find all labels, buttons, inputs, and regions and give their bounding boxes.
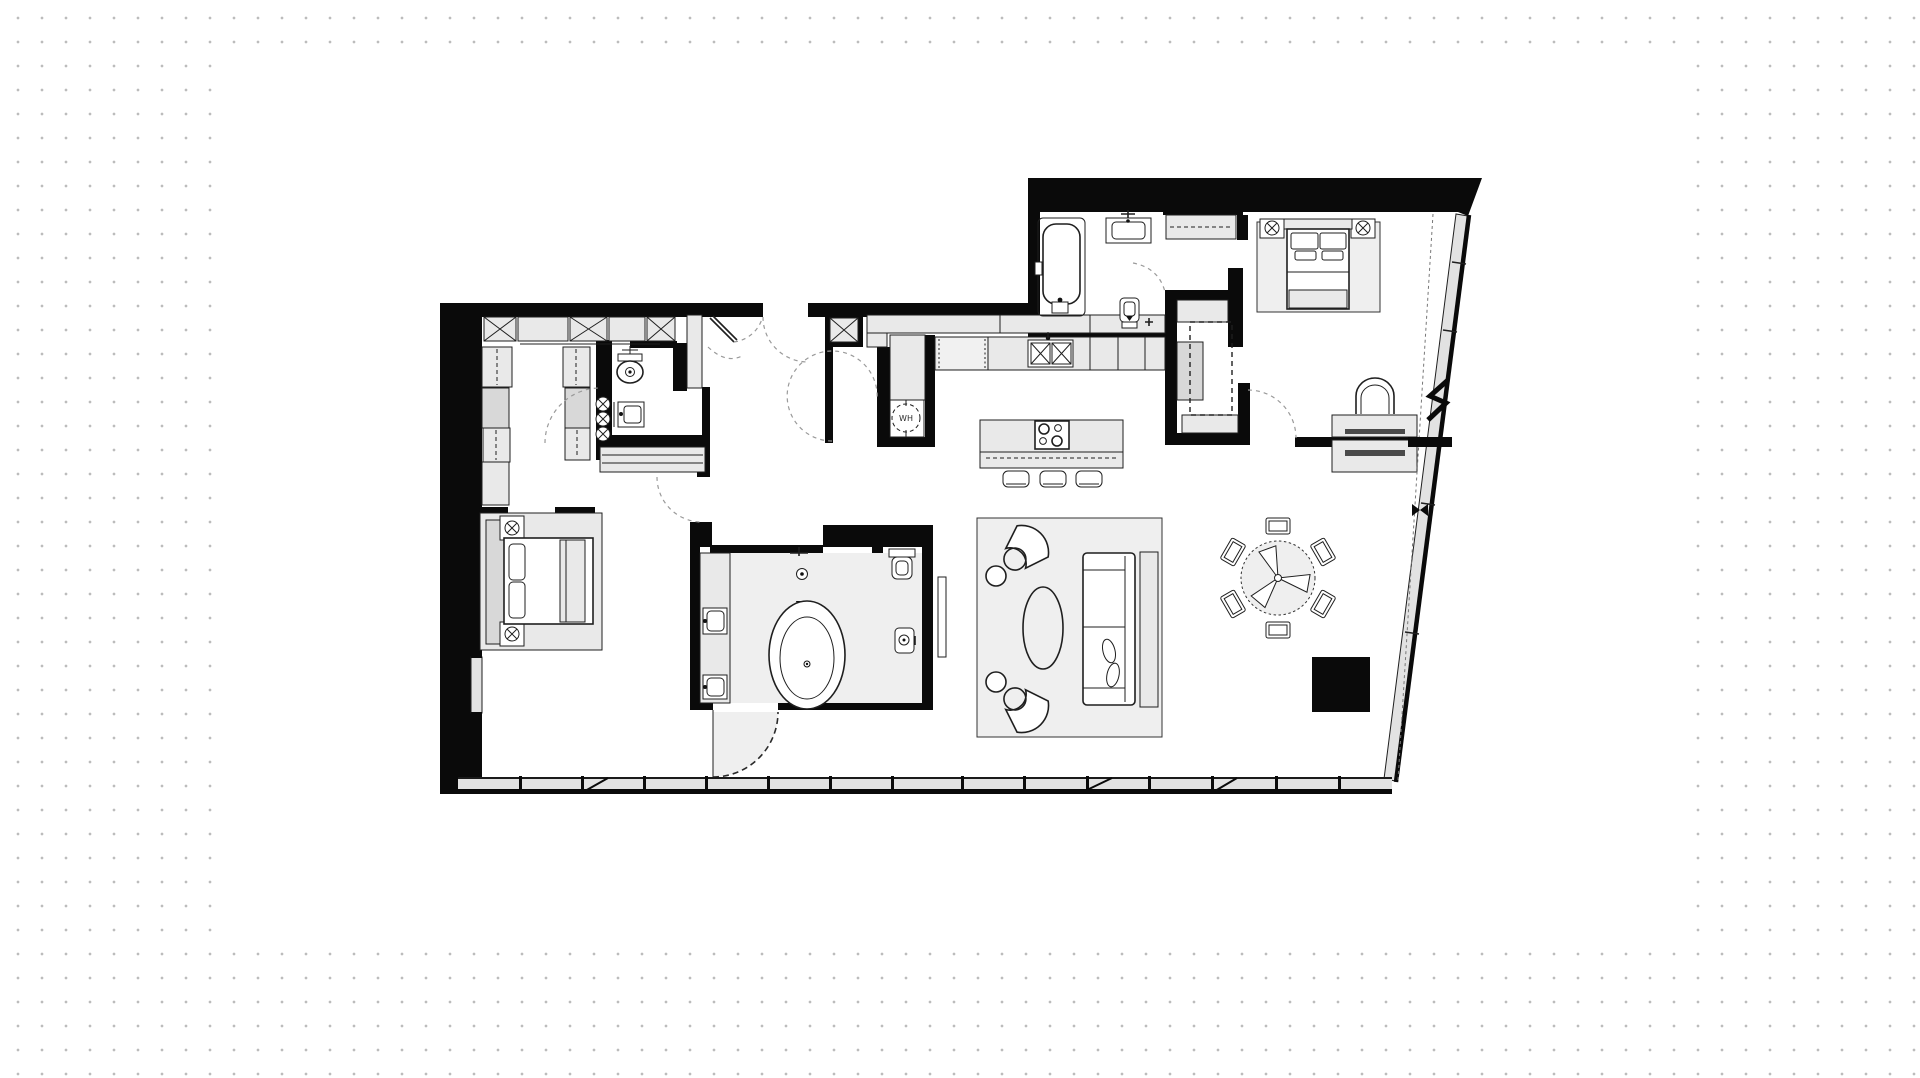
bedroom-2 <box>471 513 602 717</box>
center-bathroom <box>700 547 922 777</box>
hall-counter <box>600 447 705 472</box>
water-heater-label: WH <box>899 414 913 423</box>
water-heater-closet: WH <box>787 335 925 441</box>
master-bathroom <box>1035 210 1165 328</box>
entry-closet-row <box>484 315 702 388</box>
walkin-closet <box>482 347 590 505</box>
design-canvas: { "app": { "canvas_bg": "#ffffff", "dot"… <box>0 0 1920 1078</box>
artboard[interactable]: WH <box>222 60 1690 938</box>
facade-windows <box>1384 214 1469 782</box>
entry-hall <box>708 313 863 362</box>
floorplan-canvas[interactable]: WH <box>420 150 1500 810</box>
bottom-window-band <box>458 776 1392 794</box>
living-room <box>938 518 1162 740</box>
dining-area <box>1220 518 1370 712</box>
